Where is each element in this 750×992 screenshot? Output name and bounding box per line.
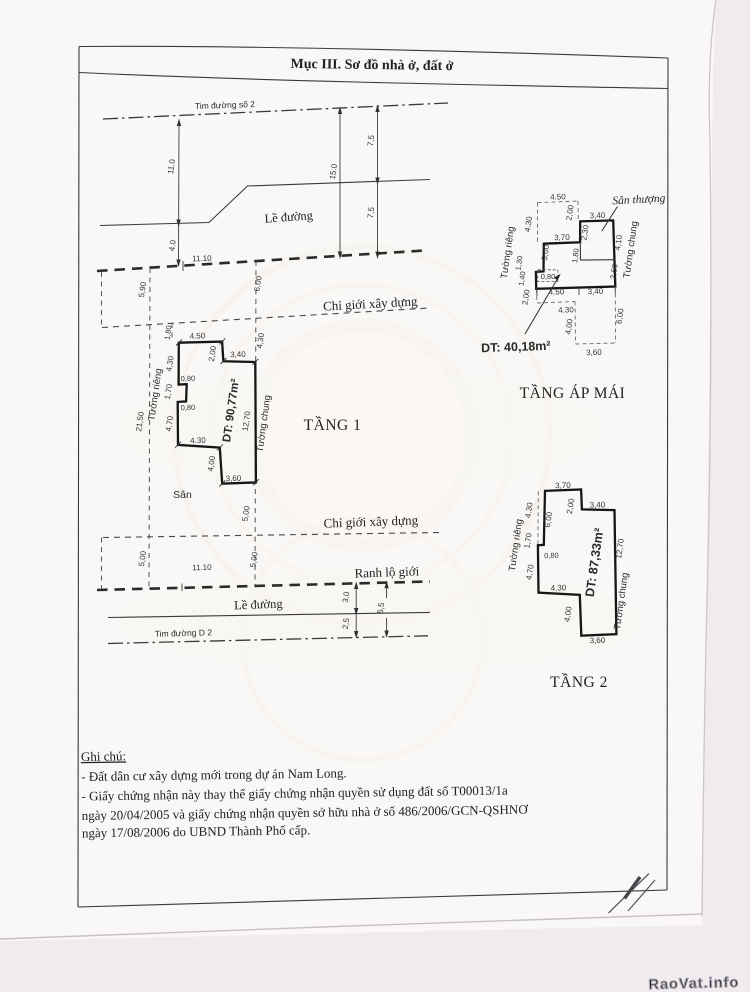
svg-text:4.50: 4.50 [548, 287, 564, 297]
svg-text:4.30: 4.30 [558, 305, 574, 315]
svg-text:DT: 40,18m²: DT: 40,18m² [481, 339, 551, 355]
svg-text:7,5: 7,5 [366, 134, 377, 147]
svg-text:TẦNG 2: TẦNG 2 [550, 674, 608, 691]
svg-text:0,80: 0,80 [544, 551, 559, 561]
svg-text:Ranh lộ giới: Ranh lộ giới [354, 563, 420, 580]
svg-text:0,80: 0,80 [541, 272, 556, 281]
svg-text:3,70: 3,70 [554, 233, 570, 243]
svg-text:TẦNG 1: TẦNG 1 [304, 417, 362, 434]
svg-text:3,60: 3,60 [586, 348, 602, 358]
svg-text:11.10: 11.10 [192, 254, 212, 264]
svg-text:3,40: 3,40 [587, 287, 603, 297]
svg-text:Tim đường số 2: Tim đường số 2 [195, 99, 256, 111]
svg-text:3,40: 3,40 [589, 211, 605, 221]
svg-text:3,70: 3,70 [555, 481, 571, 491]
svg-text:3,60: 3,60 [589, 636, 605, 646]
svg-text:2,5: 2,5 [341, 617, 352, 630]
svg-text:Lề đường: Lề đường [234, 597, 284, 613]
svg-text:4.30: 4.30 [550, 583, 566, 593]
svg-text:5,5: 5,5 [376, 601, 387, 614]
svg-text:Mục III. Sơ đồ nhà ở, đất ở: Mục III. Sơ đồ nhà ở, đất ở [290, 57, 453, 74]
svg-text:4.30: 4.30 [190, 436, 206, 446]
svg-text:11.10: 11.10 [192, 563, 212, 573]
svg-text:4.50: 4.50 [550, 192, 566, 202]
svg-text:Sân: Sân [173, 489, 192, 501]
svg-text:Ghi chú:: Ghi chú: [81, 748, 126, 764]
svg-text:0,80: 0,80 [180, 374, 195, 384]
svg-text:ngày 17/08/2006 do UBND Thành: ngày 17/08/2006 do UBND Thành Phố cấp. [82, 822, 311, 840]
svg-text:3.0: 3.0 [341, 590, 352, 603]
svg-text:3,40: 3,40 [230, 350, 246, 360]
svg-text:3,60: 3,60 [225, 474, 241, 484]
svg-text:RaoVat.info: RaoVat.info [648, 975, 739, 992]
svg-text:0,80: 0,80 [180, 403, 195, 413]
svg-text:3,40: 3,40 [589, 500, 605, 510]
svg-text:7,5: 7,5 [366, 206, 377, 219]
svg-text:4.50: 4.50 [189, 331, 205, 341]
svg-text:Tim đường D 2: Tim đường D 2 [155, 627, 213, 639]
svg-text:TẦNG ÁP MÁI: TẦNG ÁP MÁI [520, 385, 626, 402]
svg-text:4.0: 4.0 [167, 239, 178, 252]
